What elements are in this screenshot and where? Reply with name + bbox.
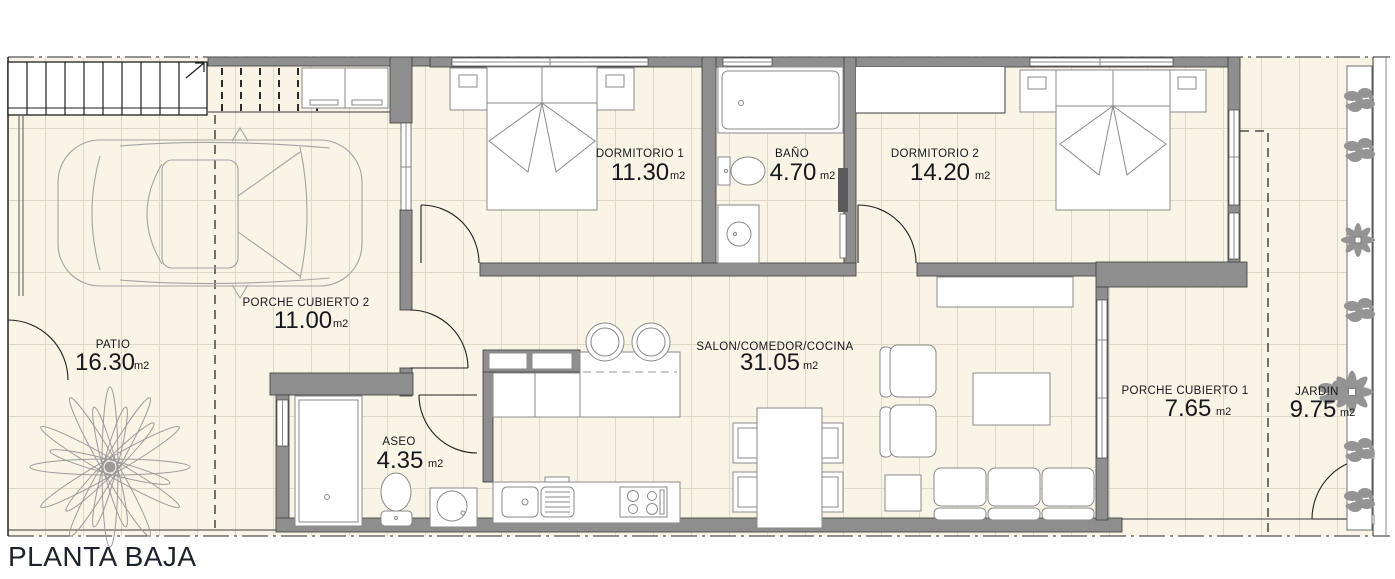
room-area: 31.05: [740, 349, 800, 376]
floor-plan-svg: PATIO 16.30 m2 PORCHE CUBIERTO 2 11.00 m…: [0, 0, 1395, 579]
room-area: 9.75: [1290, 396, 1337, 423]
side-table: [885, 475, 921, 511]
room-unit: m2: [803, 360, 818, 372]
window-top-bano: [723, 58, 772, 66]
armchair: [880, 345, 936, 397]
floor-plan-canvas: PATIO 16.30 m2 PORCHE CUBIERTO 2 11.00 m…: [0, 0, 1395, 579]
flower-rosette: [1341, 223, 1375, 257]
room-unit: m2: [670, 170, 685, 182]
kitchen-island: [580, 352, 680, 417]
window-aseo-left: [277, 400, 288, 446]
window-salon-right: [1097, 300, 1107, 458]
toilet: [718, 157, 765, 185]
sliding-door: [838, 168, 848, 212]
window-top-dorm1: [452, 58, 648, 66]
room-area: 11.00: [274, 307, 332, 334]
armchair: [880, 405, 936, 457]
nightstand: [597, 68, 634, 110]
sideboard: [937, 277, 1073, 307]
plan-title: PLANTA BAJA: [8, 541, 197, 572]
room-area: 11.30: [611, 159, 669, 186]
fridge: [493, 373, 535, 417]
sink-vanity: [718, 205, 759, 263]
pergola: [8, 62, 207, 115]
room-area: 14.20: [910, 159, 970, 186]
window-dorm2-right-2: [1229, 213, 1239, 259]
room-area: 7.65: [1165, 395, 1212, 422]
nightstand: [450, 68, 487, 110]
room-area: 4.35: [377, 447, 424, 474]
room-unit: m2: [1340, 407, 1355, 419]
nightstand: [1020, 70, 1056, 112]
dining-table: [757, 408, 822, 528]
window-top-dorm2: [1030, 58, 1173, 66]
room-unit: m2: [1216, 406, 1231, 418]
room-area: 4.70: [770, 159, 817, 186]
room-unit: m2: [428, 458, 443, 470]
room-unit: m2: [333, 318, 348, 330]
shower: [295, 396, 362, 526]
room-unit: m2: [975, 170, 990, 182]
window-left-wall: [401, 123, 411, 210]
room-area: 16.30: [75, 349, 135, 376]
room-unit: m2: [134, 360, 149, 372]
room-unit: m2: [820, 170, 835, 182]
toilet: [381, 473, 412, 526]
sink-vanity: [430, 488, 477, 527]
nightstand: [1170, 70, 1206, 112]
sofa: [934, 468, 1094, 520]
coffee-table: [973, 373, 1050, 425]
bathtub: [718, 67, 843, 133]
window-dorm2-right-1: [1229, 110, 1239, 205]
